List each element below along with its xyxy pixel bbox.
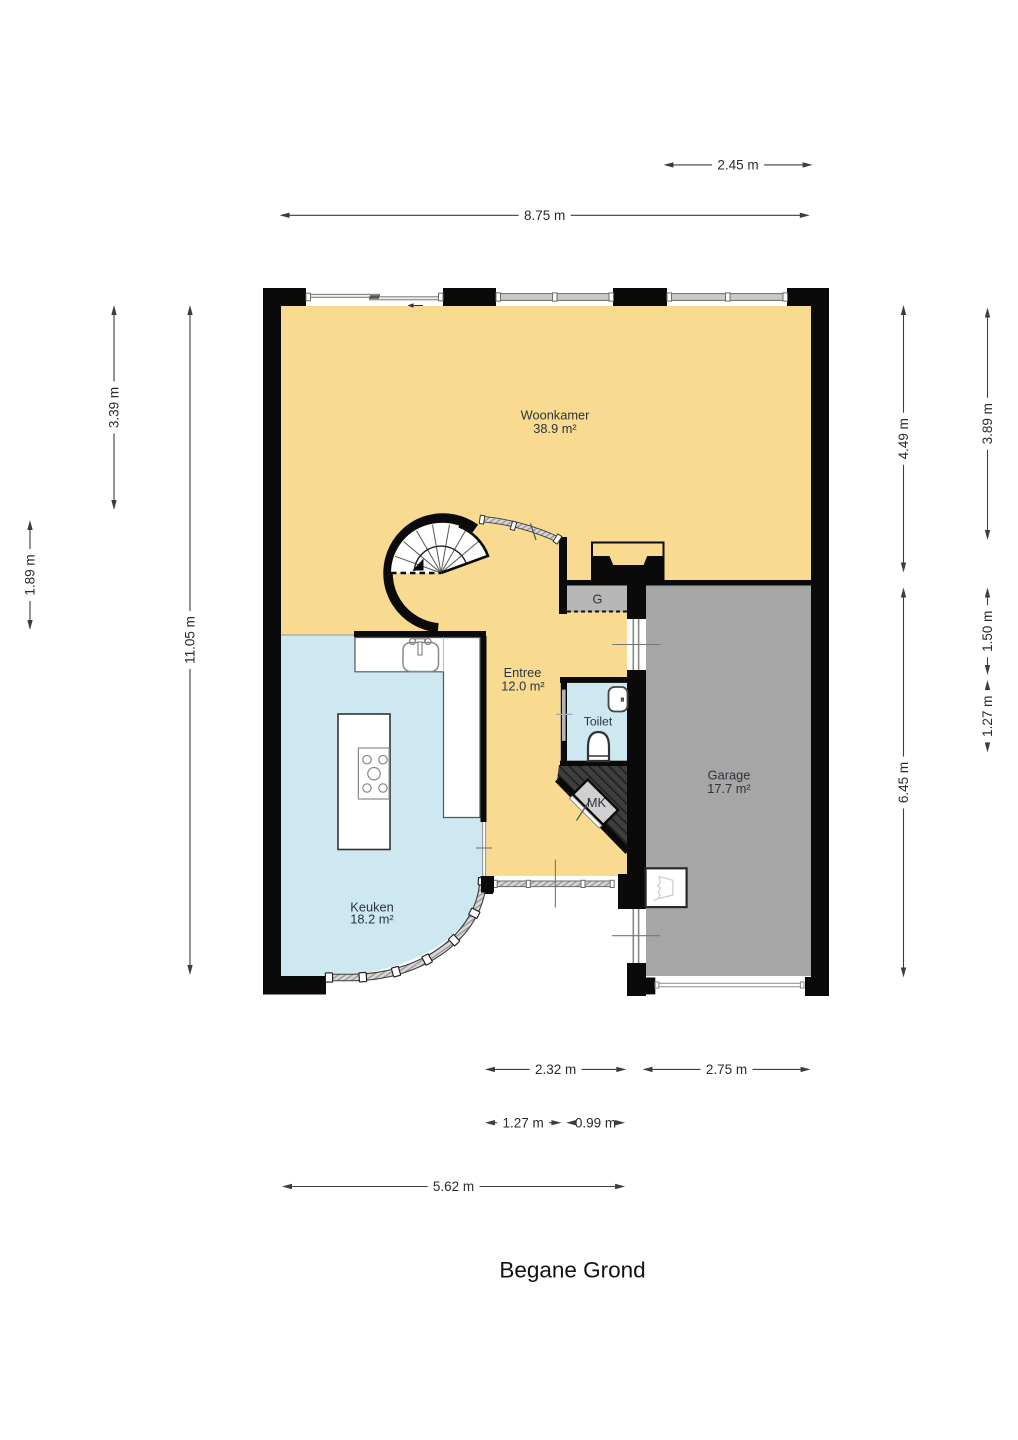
svg-text:11.05 m: 11.05 m xyxy=(183,616,198,664)
svg-text:G: G xyxy=(593,592,603,607)
svg-text:3.39 m: 3.39 m xyxy=(107,387,122,428)
svg-text:38.9 m²: 38.9 m² xyxy=(533,421,577,436)
svg-text:18.2 m²: 18.2 m² xyxy=(350,912,394,927)
svg-text:1.27 m: 1.27 m xyxy=(980,696,995,737)
svg-text:8.75 m: 8.75 m xyxy=(524,208,565,223)
svg-text:4.49 m: 4.49 m xyxy=(896,418,911,459)
svg-text:3.89 m: 3.89 m xyxy=(980,403,995,444)
svg-text:Begane Grond: Begane Grond xyxy=(499,1258,645,1283)
svg-text:12.0 m²: 12.0 m² xyxy=(501,679,545,694)
svg-text:17.7 m²: 17.7 m² xyxy=(707,781,751,796)
svg-text:Toilet: Toilet xyxy=(584,715,613,729)
svg-text:1.27 m: 1.27 m xyxy=(503,1115,544,1130)
svg-text:6.45 m: 6.45 m xyxy=(896,762,911,803)
svg-text:1.50 m: 1.50 m xyxy=(980,611,995,652)
svg-text:MK: MK xyxy=(587,795,607,810)
svg-text:1.89 m: 1.89 m xyxy=(23,554,38,595)
svg-text:0.99 m: 0.99 m xyxy=(575,1115,616,1130)
svg-text:2.75 m: 2.75 m xyxy=(706,1062,747,1077)
svg-text:2.45 m: 2.45 m xyxy=(717,158,758,173)
svg-text:5.62 m: 5.62 m xyxy=(433,1179,474,1194)
svg-text:2.32 m: 2.32 m xyxy=(535,1062,576,1077)
